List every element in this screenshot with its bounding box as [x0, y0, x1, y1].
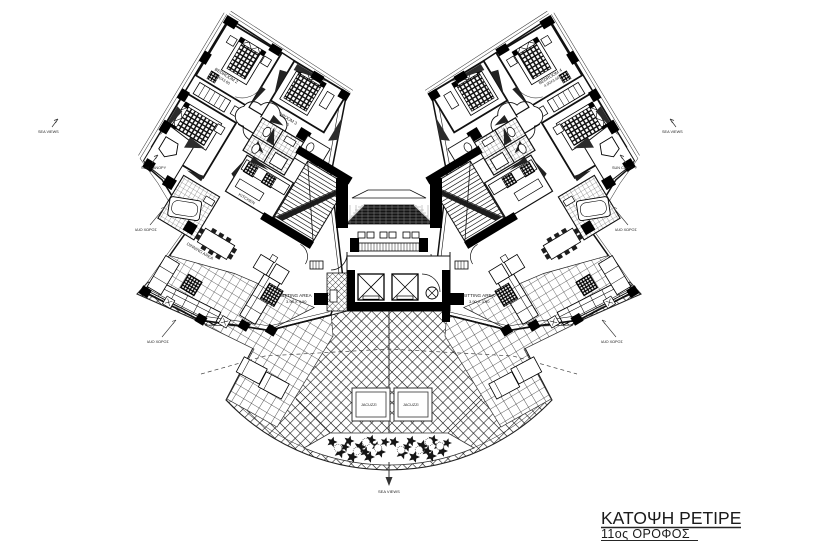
svg-text:ΚΑΤΟΨΗ ΡΕΤΙΡΕ: ΚΑΤΟΨΗ ΡΕΤΙΡΕ	[601, 508, 741, 528]
svg-text:SITTING AREA: SITTING AREA	[280, 293, 313, 298]
svg-text:JACUZZI: JACUZZI	[361, 403, 377, 407]
svg-text:ΙΔΙΟ ΧΩΡΟΣ: ΙΔΙΟ ΧΩΡΟΣ	[147, 340, 170, 344]
svg-text:3.90 X 3.90: 3.90 X 3.90	[469, 299, 490, 304]
svg-text:SUN CANOPY: SUN CANOPY	[612, 166, 638, 170]
svg-text:SEA VIEWS: SEA VIEWS	[378, 489, 400, 494]
svg-text:SUN CANOPY: SUN CANOPY	[141, 166, 167, 170]
svg-text:11ος ΟΡΟΦΟΣ: 11ος ΟΡΟΦΟΣ	[601, 527, 690, 541]
svg-text:SEA VIEWS: SEA VIEWS	[38, 130, 59, 134]
svg-text:ΙΔΙΟ ΧΩΡΟΣ: ΙΔΙΟ ΧΩΡΟΣ	[615, 228, 638, 232]
svg-text:3.90 X 3.90: 3.90 X 3.90	[286, 299, 307, 304]
svg-text:JACUZZI: JACUZZI	[403, 403, 419, 407]
svg-text:SITTING AREA: SITTING AREA	[463, 293, 496, 298]
svg-text:ΙΔΙΟ ΧΩΡΟΣ: ΙΔΙΟ ΧΩΡΟΣ	[601, 340, 624, 344]
svg-text:ΙΔΙΟ ΧΩΡΟΣ: ΙΔΙΟ ΧΩΡΟΣ	[135, 228, 158, 232]
svg-text:SEA VIEWS: SEA VIEWS	[662, 130, 683, 134]
